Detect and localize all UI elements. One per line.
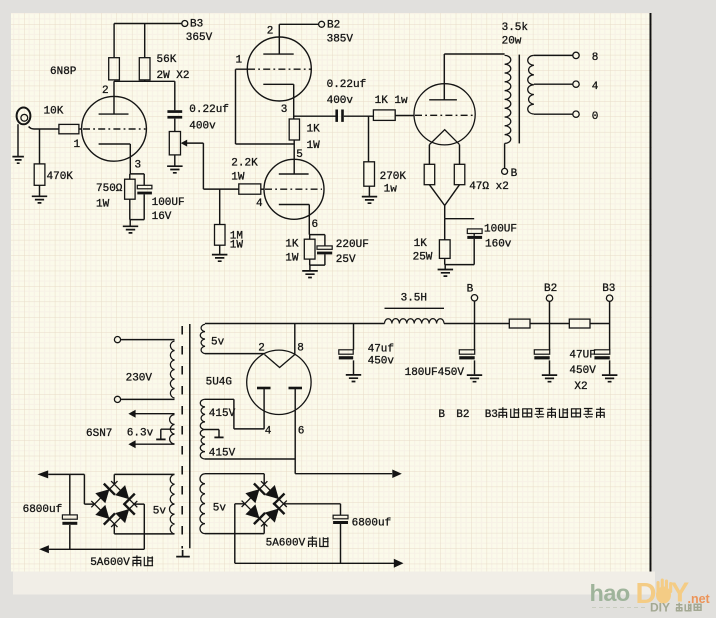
svg-text:470K: 470K <box>47 171 74 183</box>
svg-text:180UF450V: 180UF450V <box>405 367 465 379</box>
svg-text:25W: 25W <box>413 252 433 264</box>
svg-text:hao: hao <box>590 580 630 606</box>
svg-text:750Ω: 750Ω <box>96 183 123 195</box>
svg-text:2.2K: 2.2K <box>231 157 258 169</box>
svg-text:1K: 1K <box>285 239 299 251</box>
svg-text:100UF: 100UF <box>152 197 185 209</box>
svg-text:5A600V: 5A600V <box>266 538 306 550</box>
svg-text:2: 2 <box>267 26 274 38</box>
svg-text:56K: 56K <box>157 54 177 66</box>
svg-text:4: 4 <box>592 81 599 93</box>
svg-text:1W: 1W <box>285 253 299 265</box>
svg-text:20w: 20w <box>502 35 522 47</box>
svg-text:5U4G: 5U4G <box>206 377 232 389</box>
svg-text:3.5H: 3.5H <box>401 292 427 304</box>
svg-text:270K: 270K <box>380 171 407 183</box>
svg-text:47Ω x2: 47Ω x2 <box>469 181 509 193</box>
svg-text:3.5k: 3.5k <box>502 22 529 34</box>
svg-text:B3: B3 <box>602 283 615 295</box>
svg-text:0.22uf: 0.22uf <box>189 104 229 116</box>
svg-text:6N8P: 6N8P <box>50 66 77 78</box>
svg-text:DIY: DIY <box>650 601 670 615</box>
svg-text:B: B <box>467 283 474 295</box>
svg-text:400v: 400v <box>189 121 216 133</box>
svg-text:B: B <box>438 409 445 421</box>
svg-text:2: 2 <box>258 342 265 354</box>
svg-text:1w: 1w <box>384 183 398 195</box>
svg-text:5A600V: 5A600V <box>90 557 130 569</box>
svg-text:47UF: 47UF <box>569 350 595 362</box>
svg-text:3: 3 <box>135 160 142 172</box>
svg-text:6.3v: 6.3v <box>127 427 154 439</box>
svg-text:B3: B3 <box>190 18 203 30</box>
svg-text:8: 8 <box>297 342 304 354</box>
svg-text:415V: 415V <box>209 408 236 420</box>
svg-text:100UF: 100UF <box>484 223 517 235</box>
svg-text:0: 0 <box>592 111 599 123</box>
svg-text:B2: B2 <box>456 409 469 421</box>
svg-text:1W: 1W <box>230 240 244 252</box>
svg-text:5v: 5v <box>213 502 227 514</box>
svg-text:B2: B2 <box>327 20 340 32</box>
svg-text:1K: 1K <box>307 124 321 136</box>
svg-text:1W: 1W <box>231 172 245 184</box>
svg-text:3: 3 <box>281 104 288 116</box>
svg-text:5v: 5v <box>153 505 167 517</box>
svg-text:230V: 230V <box>126 373 153 385</box>
svg-text:450V: 450V <box>569 365 596 377</box>
svg-text:8: 8 <box>592 52 599 64</box>
svg-text:2: 2 <box>102 85 109 97</box>
svg-text:6800uf: 6800uf <box>23 504 63 516</box>
svg-text:B3: B3 <box>485 409 498 421</box>
svg-text:1: 1 <box>236 55 243 67</box>
svg-text:1W: 1W <box>307 140 321 152</box>
svg-text:25V: 25V <box>336 254 356 266</box>
svg-text:2W X2: 2W X2 <box>157 70 190 82</box>
svg-text:5v: 5v <box>211 337 225 349</box>
svg-text:6800uf: 6800uf <box>352 517 392 529</box>
svg-text:160v: 160v <box>485 239 512 251</box>
svg-text:B: B <box>511 168 518 180</box>
svg-text:385V: 385V <box>327 33 354 45</box>
svg-text:16V: 16V <box>152 211 172 223</box>
svg-text:4: 4 <box>256 198 263 210</box>
svg-text:365V: 365V <box>186 32 213 44</box>
svg-text:400v: 400v <box>327 95 354 107</box>
svg-text:6SN7: 6SN7 <box>86 428 112 440</box>
svg-text:220UF: 220UF <box>336 239 369 251</box>
svg-text:1K 1w: 1K 1w <box>375 95 408 107</box>
svg-text:415V: 415V <box>209 448 236 460</box>
svg-text:0.22uf: 0.22uf <box>327 79 367 91</box>
svg-text:450v: 450v <box>368 355 395 367</box>
svg-text:47uf: 47uf <box>368 343 394 355</box>
svg-text:6: 6 <box>298 426 305 438</box>
svg-text:4: 4 <box>265 426 272 438</box>
svg-text:1: 1 <box>74 139 81 151</box>
svg-text:6: 6 <box>312 219 319 231</box>
svg-text:1K: 1K <box>414 238 428 250</box>
svg-text:10K: 10K <box>44 106 64 118</box>
svg-text:X2: X2 <box>574 381 587 393</box>
svg-text:1W: 1W <box>96 198 110 210</box>
svg-text:B2: B2 <box>544 283 557 295</box>
